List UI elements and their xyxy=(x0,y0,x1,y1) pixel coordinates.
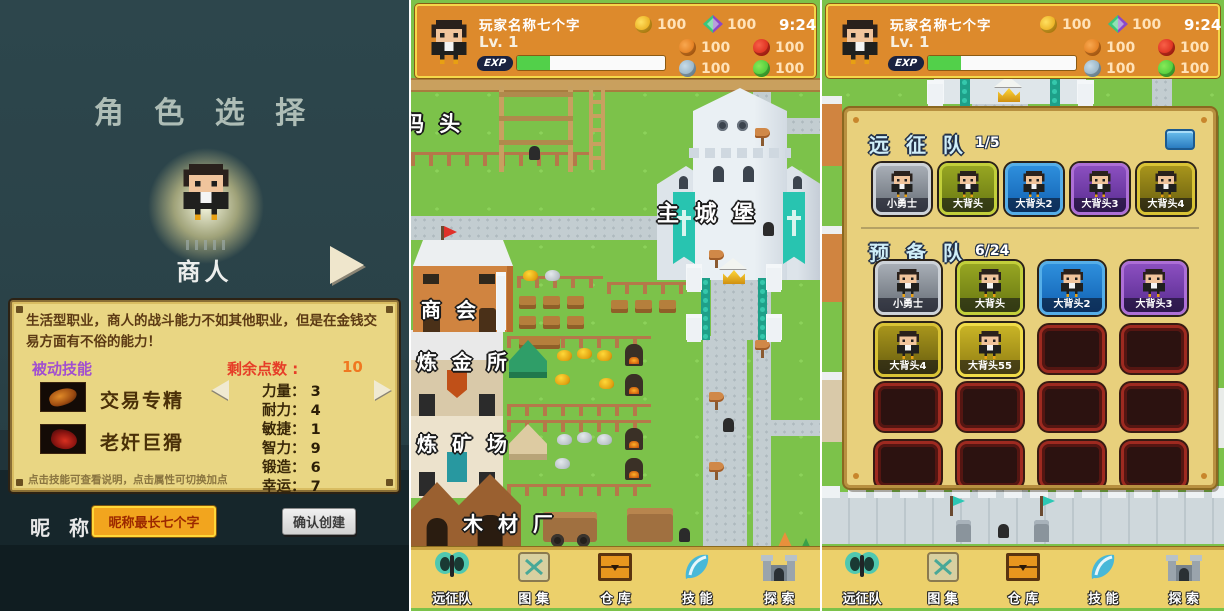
gold-value: 100 xyxy=(1062,17,1091,33)
nav-explore[interactable]: 探 索 xyxy=(744,551,814,607)
chest-icon xyxy=(1004,551,1042,583)
unit-name: 大背头2 xyxy=(1008,198,1060,212)
castle-round-window xyxy=(737,120,748,131)
entrance-pillar xyxy=(767,268,781,292)
expedition-screen: 远 征 队 1/5 小勇士 大背头 大背头2 大背头3 大背头 xyxy=(822,0,1224,611)
nav-atlas[interactable]: 图 集 xyxy=(908,551,978,607)
nav-expedition[interactable]: 远征队 xyxy=(417,551,487,607)
wood-icon xyxy=(753,60,770,77)
guild-roof xyxy=(413,240,513,266)
dock-label[interactable]: 码 头 xyxy=(411,108,464,138)
skill-row-trade[interactable]: 交易专精 xyxy=(40,382,210,414)
food-icon xyxy=(1084,39,1101,56)
food-value: 100 xyxy=(701,40,730,56)
stat-label: 耐力： xyxy=(262,403,306,419)
unit-name: 大背头3 xyxy=(1124,298,1184,312)
feather-icon xyxy=(680,551,714,583)
next-class-arrow-icon[interactable] xyxy=(330,246,364,284)
gold-coin-icon xyxy=(1040,16,1057,33)
meat-icon xyxy=(753,39,770,56)
unit-name: 大背头 xyxy=(960,298,1020,312)
empty-slot[interactable] xyxy=(1039,325,1105,373)
chest-icon xyxy=(596,551,634,583)
map-icon xyxy=(925,551,961,583)
nav-expedition[interactable]: 远征队 xyxy=(827,551,897,607)
castle-banner-right xyxy=(783,192,805,264)
castle-window xyxy=(713,166,724,182)
nav-label: 图 集 xyxy=(908,588,978,607)
cunning-skill-icon xyxy=(40,424,86,454)
ore-pile xyxy=(555,458,570,469)
ruins-gate-icon xyxy=(760,551,798,583)
player-name: 玩家名称七个字 xyxy=(479,14,581,34)
ore-pile xyxy=(577,432,592,443)
reserve-card-3[interactable]: 大背头2 xyxy=(1039,261,1105,315)
bottom-navbar: 远征队 图 集 仓 库 xyxy=(411,547,820,608)
gold-pile xyxy=(599,378,614,389)
nav-label: 技 能 xyxy=(662,588,732,607)
gate-statue xyxy=(956,520,971,542)
unit-name: 小勇士 xyxy=(876,198,928,212)
entrance-hedge xyxy=(960,78,970,108)
stat-row-agility[interactable]: 敏捷： 1 xyxy=(262,418,321,439)
stone-value: 100 xyxy=(1106,61,1135,77)
nav-label: 探 索 xyxy=(744,588,814,607)
furnace xyxy=(625,458,643,480)
market-stall xyxy=(519,296,536,309)
market-stall xyxy=(635,300,652,313)
empty-slot[interactable] xyxy=(875,383,941,431)
entrance-pillar xyxy=(928,84,943,106)
entrance-hedge xyxy=(758,278,767,340)
signpost-icon xyxy=(755,128,770,138)
ruins-gate-icon xyxy=(1165,551,1203,583)
stat-label: 力量： xyxy=(262,384,306,400)
entrance-pillar xyxy=(767,318,781,342)
player-name: 玩家名称七个字 xyxy=(890,14,992,34)
castle-window xyxy=(743,166,754,182)
ore-pile xyxy=(557,434,572,445)
page-title: 角 色 选 择 xyxy=(0,88,409,132)
butterfly-icon xyxy=(843,551,881,583)
screenshot: 角 色 选 择 商人 生活型职业，商人的战斗能力不如其他职业，但是在金钱交易方面… xyxy=(0,0,1224,611)
player-level: Lv. 1 xyxy=(479,33,518,51)
gold-pile xyxy=(577,348,592,359)
main-road xyxy=(703,336,747,550)
empty-slot[interactable] xyxy=(1039,441,1105,488)
class-description: 生活型职业，商人的战斗能力不如其他职业，但是在金钱交易方面有不俗的能力！ xyxy=(26,311,388,353)
villager xyxy=(529,146,540,160)
empty-slot[interactable] xyxy=(957,383,1023,431)
reserve-card-4[interactable]: 大背头3 xyxy=(1121,261,1187,315)
exp-fill xyxy=(517,56,550,70)
stat-label: 锻造： xyxy=(262,460,306,476)
clock-time: 9:24 xyxy=(1184,16,1221,34)
stat-row-intelligence[interactable]: 智力： 9 xyxy=(262,437,321,458)
signpost-icon xyxy=(709,462,724,472)
skill-name: 交易专精 xyxy=(100,386,184,413)
gold-pile xyxy=(555,374,570,385)
butterfly-icon xyxy=(433,551,471,583)
player-hud: 玩家名称七个字 Lv. 1 EXP 100 100 9:24 100 100 1… xyxy=(826,4,1220,78)
nav-skills[interactable]: 技 能 xyxy=(662,551,732,607)
nickname-label: 昵 称 xyxy=(30,512,95,541)
gem-icon xyxy=(703,15,723,33)
corner-pin-icon xyxy=(16,479,23,486)
market-stall xyxy=(611,300,628,313)
market-stall xyxy=(567,296,584,309)
unit-name: 大背头3 xyxy=(1074,198,1126,212)
bottom-navbar: 远征队 图 集 仓 库 xyxy=(822,547,1224,608)
market-stall xyxy=(519,316,536,329)
market-stall xyxy=(543,296,560,309)
entrance-hedge xyxy=(701,278,710,340)
nav-warehouse[interactable]: 仓 库 xyxy=(988,551,1058,607)
castle-battlement xyxy=(689,148,791,158)
alchemy-label[interactable]: 炼 金 所 xyxy=(417,346,511,375)
furnace xyxy=(625,374,643,396)
crate xyxy=(627,508,673,542)
nav-label: 图 集 xyxy=(499,588,569,607)
stat-value: 3 xyxy=(311,384,321,400)
food-value: 100 xyxy=(1106,40,1135,56)
shrine-canopy xyxy=(719,258,747,269)
market-stall xyxy=(543,316,560,329)
gem-icon xyxy=(1108,15,1128,33)
class-info-card: 生活型职业，商人的战斗能力不如其他职业，但是在金钱交易方面有不俗的能力！ 被动技… xyxy=(10,300,399,492)
empty-slot[interactable] xyxy=(1121,383,1187,431)
unit-name: 大背头 xyxy=(942,198,994,212)
clock-time: 9:24 xyxy=(779,16,816,34)
nav-label: 仓 库 xyxy=(580,588,650,607)
wood-icon xyxy=(1158,60,1175,77)
team-card-3[interactable]: 大背头2 xyxy=(1005,163,1063,215)
player-hud: 玩家名称七个字 Lv. 1 EXP 100 100 9:24 100 100 1… xyxy=(415,4,816,78)
character-shadow-dots xyxy=(186,240,228,250)
entrance-hedge xyxy=(1050,78,1060,108)
corner-pin-icon xyxy=(1201,473,1207,479)
stat-row-strength[interactable]: 力量： 3 xyxy=(262,380,321,401)
gem-value: 100 xyxy=(1132,17,1161,33)
empty-slot[interactable] xyxy=(1039,383,1105,431)
stat-label: 智力： xyxy=(262,441,306,457)
unit-name: 小勇士 xyxy=(878,298,938,312)
nav-label: 技 能 xyxy=(1068,588,1138,607)
entrance-pillar xyxy=(1078,84,1093,106)
castle-round-window xyxy=(717,120,728,131)
entrance-pillar xyxy=(687,268,701,292)
corner-pin-icon xyxy=(16,306,23,313)
guild-flag-icon xyxy=(444,226,457,238)
gold-pile xyxy=(557,350,572,361)
reserve-card-5[interactable]: 大背头4 xyxy=(875,323,941,377)
unit-name: 大背头2 xyxy=(1042,298,1102,312)
market-stall xyxy=(567,316,584,329)
stat-decrease-arrow-icon[interactable] xyxy=(212,380,229,400)
team-card-2[interactable]: 大背头 xyxy=(939,163,997,215)
stone-value: 100 xyxy=(701,61,730,77)
nav-label: 远征队 xyxy=(827,588,897,607)
castle-main-tower[interactable] xyxy=(693,88,787,280)
reserve-count: 6/24 xyxy=(975,243,1009,259)
empty-slot[interactable] xyxy=(1121,441,1187,488)
character-sprite xyxy=(178,162,234,222)
castle-label[interactable]: 主 城 堡 xyxy=(657,196,758,228)
yard-fence xyxy=(507,484,651,496)
skill-row-cunning[interactable]: 老奸巨猾 xyxy=(40,424,210,456)
unit-name: 大背头4 xyxy=(1140,198,1192,212)
passive-skill-label: 被动技能 xyxy=(32,358,92,379)
player-level: Lv. 1 xyxy=(890,33,929,51)
stall-goods xyxy=(523,270,538,281)
character-select-screen: 角 色 选 择 商人 生活型职业，商人的战斗能力不如其他职业，但是在金钱交易方面… xyxy=(0,0,409,611)
stat-value: 9 xyxy=(311,441,321,457)
guild-banner-pole xyxy=(497,276,505,332)
unit-name: 大背头4 xyxy=(878,360,938,374)
feather-icon xyxy=(1086,551,1120,583)
wood-value: 100 xyxy=(775,61,804,77)
gold-coin-icon xyxy=(635,16,652,33)
stat-value: 1 xyxy=(311,422,321,438)
mine-label[interactable]: 炼 矿 场 xyxy=(417,428,511,457)
sort-button[interactable] xyxy=(1165,129,1195,150)
expedition-count: 1/5 xyxy=(975,135,1000,151)
market-stall xyxy=(659,300,676,313)
unit-name: 大背头55 xyxy=(960,360,1020,374)
villager xyxy=(998,524,1009,538)
nav-atlas[interactable]: 图 集 xyxy=(499,551,569,607)
exp-badge: EXP xyxy=(887,56,925,71)
nav-warehouse[interactable]: 仓 库 xyxy=(580,551,650,607)
east-road xyxy=(1152,78,1172,112)
expedition-title: 远 征 队 xyxy=(869,129,968,158)
edge-building xyxy=(822,226,842,302)
ore-pile xyxy=(597,434,612,445)
corner-pin-icon xyxy=(1201,117,1207,123)
castle-entrance-path xyxy=(711,280,757,340)
nav-label: 探 索 xyxy=(1149,588,1219,607)
meat-value: 100 xyxy=(1180,40,1209,56)
dirt-path xyxy=(411,78,820,92)
stat-label: 敏捷： xyxy=(262,422,306,438)
castle-window xyxy=(679,176,688,189)
stat-value: 7 xyxy=(311,479,321,495)
guild-label[interactable]: 商 会 xyxy=(421,294,480,323)
reserve-card-2[interactable]: 大背头 xyxy=(957,261,1023,315)
cart-wheel xyxy=(577,534,590,547)
stone-icon xyxy=(679,60,696,77)
expedition-dialog: 远 征 队 1/5 小勇士 大背头 大背头2 大背头3 大背头 xyxy=(844,108,1216,488)
skill-name: 老奸巨猾 xyxy=(100,428,184,455)
corner-pin-icon xyxy=(386,479,393,486)
confirm-create-button[interactable]: 确认创建 xyxy=(282,508,356,535)
wall-flag-icon xyxy=(1043,496,1055,506)
gold-value: 100 xyxy=(657,17,686,33)
map-icon xyxy=(516,551,552,583)
corner-pin-icon xyxy=(853,117,859,123)
nav-label: 远征队 xyxy=(417,588,487,607)
stat-row-luck[interactable]: 幸运： 7 xyxy=(262,475,321,496)
gate-statue xyxy=(1034,520,1049,542)
corner-pin-icon xyxy=(853,473,859,479)
signpost-icon xyxy=(709,392,724,402)
furnace xyxy=(625,344,643,366)
reserve-card-1[interactable]: 小勇士 xyxy=(875,261,941,315)
gem-value: 100 xyxy=(727,17,756,33)
exp-bar xyxy=(928,56,1076,70)
furnace xyxy=(625,428,643,450)
meat-icon xyxy=(1158,39,1175,56)
entrance-pillar xyxy=(687,318,701,342)
yard-fence xyxy=(507,404,651,416)
city-wall xyxy=(822,492,1224,544)
food-icon xyxy=(679,39,696,56)
stall-fence xyxy=(607,282,697,294)
ladder xyxy=(589,86,605,170)
exp-bar xyxy=(517,56,665,70)
stat-row-forging[interactable]: 锻造： 6 xyxy=(262,456,321,477)
city-silhouette xyxy=(0,545,409,611)
player-avatar[interactable] xyxy=(838,14,882,70)
team-card-4[interactable]: 大背头3 xyxy=(1071,163,1129,215)
castle-window xyxy=(793,176,802,189)
stat-value: 4 xyxy=(311,403,321,419)
divider xyxy=(861,227,1199,229)
player-avatar[interactable] xyxy=(427,14,471,70)
team-card-1[interactable]: 小勇士 xyxy=(873,163,931,215)
edge-building xyxy=(822,96,842,166)
east-road-stub xyxy=(771,420,820,436)
card-hint-text: 点击技能可查看说明，点击属性可切换加点 xyxy=(28,472,228,487)
stat-row-endurance[interactable]: 耐力： 4 xyxy=(262,399,321,420)
remaining-points-label: 剩余点数 : xyxy=(227,358,298,379)
nickname-input[interactable] xyxy=(92,506,216,537)
empty-slot[interactable] xyxy=(875,441,941,488)
villager xyxy=(679,528,690,542)
reserve-card-6[interactable]: 大背头55 xyxy=(957,323,1023,377)
wall-flag-icon xyxy=(953,496,965,506)
wood-value: 100 xyxy=(1180,61,1209,77)
empty-slot[interactable] xyxy=(957,441,1023,488)
stat-label: 幸运： xyxy=(262,479,306,495)
stone-icon xyxy=(1084,60,1101,77)
meat-value: 100 xyxy=(775,40,804,56)
edge-building xyxy=(822,372,844,442)
stat-increase-arrow-icon[interactable] xyxy=(374,380,391,400)
nav-skills[interactable]: 技 能 xyxy=(1068,551,1138,607)
villager xyxy=(723,418,734,432)
remaining-points-value: 10 xyxy=(342,358,363,376)
villager xyxy=(763,222,774,236)
team-card-5[interactable]: 大背头4 xyxy=(1137,163,1195,215)
lumber-label[interactable]: 木 材 厂 xyxy=(463,508,557,537)
stat-value: 6 xyxy=(311,460,321,476)
exp-fill xyxy=(928,56,961,70)
gold-pile xyxy=(597,350,612,361)
stall-goods xyxy=(545,270,560,281)
nav-explore[interactable]: 探 索 xyxy=(1149,551,1219,607)
nav-label: 仓 库 xyxy=(988,588,1058,607)
exp-badge: EXP xyxy=(476,56,514,71)
empty-slot[interactable] xyxy=(1121,325,1187,373)
town-map-screen: 码 头 主 城 堡 xyxy=(411,0,820,611)
trade-skill-icon xyxy=(40,382,86,412)
